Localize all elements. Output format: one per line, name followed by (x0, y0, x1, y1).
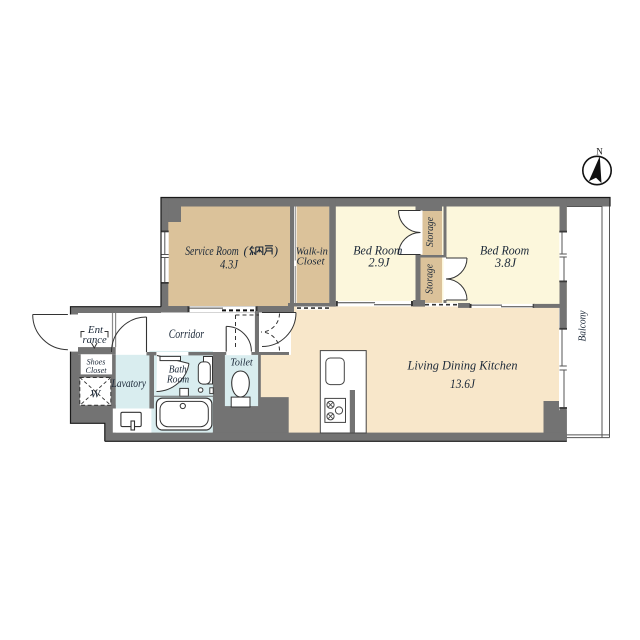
svg-text:W: W (90, 387, 101, 401)
svg-text:Storage: Storage (425, 217, 436, 247)
svg-text:Toilet: Toilet (230, 357, 253, 369)
svg-text:4.3J: 4.3J (220, 258, 239, 272)
svg-text:13.6J: 13.6J (450, 377, 476, 391)
svg-text:2.9J: 2.9J (368, 256, 391, 270)
svg-text:Closet: Closet (297, 257, 326, 268)
svg-text:Corridor: Corridor (169, 327, 204, 341)
svg-text:Service Room: Service Room (185, 244, 239, 258)
svg-text:rance: rance (83, 335, 108, 346)
svg-text:Lavatory: Lavatory (111, 376, 147, 390)
svg-text:Room: Room (166, 375, 190, 386)
svg-text:N: N (596, 147, 603, 157)
svg-text:Living Dining Kitchen: Living Dining Kitchen (407, 358, 518, 373)
svg-text:Balcony: Balcony (577, 310, 588, 341)
svg-text:Closet: Closet (86, 365, 108, 375)
svg-text:): ) (273, 244, 278, 258)
svg-text:(: ( (244, 244, 249, 258)
svg-text:3.8J: 3.8J (494, 256, 518, 270)
svg-text:Storage: Storage (425, 264, 436, 294)
